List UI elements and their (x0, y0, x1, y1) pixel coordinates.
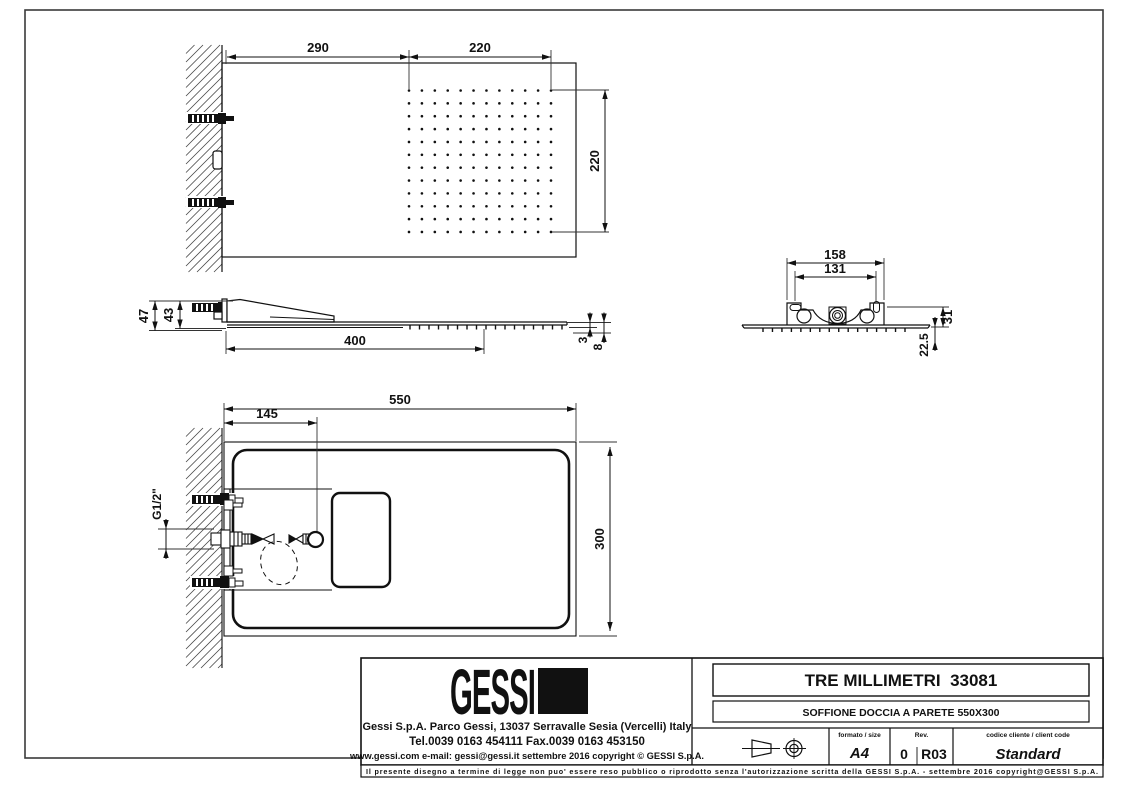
dim-arrowhead (542, 54, 551, 59)
dim-arrowhead (587, 314, 592, 323)
nozzle-dot (524, 128, 527, 131)
nozzle-dot (408, 192, 411, 195)
nozzle-dot (434, 166, 437, 169)
nozzle-dot (408, 166, 411, 169)
hose-connection-port (308, 532, 323, 547)
nozzle-dot (498, 192, 501, 195)
nozzle-dot (472, 179, 475, 182)
nozzle-dot (524, 166, 527, 169)
rear-view (742, 302, 930, 333)
nozzle-dot (434, 141, 437, 144)
dim-arrowhead (932, 318, 937, 327)
nozzle-dot (459, 166, 462, 169)
wall-clip-detail (213, 151, 222, 169)
nozzle-dot (421, 179, 424, 182)
nozzle-dot (537, 179, 540, 182)
dim-arrowhead (475, 346, 484, 351)
nozzle-dot (511, 141, 514, 144)
dim-arrowhead (607, 622, 612, 631)
nozzle-dot (421, 128, 424, 131)
nozzle-ticks-rear (763, 329, 905, 333)
nozzle-dot (511, 231, 514, 234)
dim-label: 220 (587, 150, 602, 172)
dim-label: 158 (824, 247, 846, 262)
nozzle-dot (459, 154, 462, 157)
shower-plate-outline-top (222, 63, 576, 257)
rev-value: 0 (900, 746, 908, 762)
wall-anchor-icon (186, 196, 234, 208)
nozzle-dot (511, 205, 514, 208)
nozzle-dot (550, 128, 553, 131)
nozzle-dot (524, 218, 527, 221)
nozzle-dot (459, 89, 462, 92)
dim-arrowhead (601, 333, 606, 342)
nozzle-dot (446, 89, 449, 92)
nozzle-dot (434, 89, 437, 92)
nozzle-dot (537, 166, 540, 169)
nozzle-dot (421, 115, 424, 118)
nozzle-dot (434, 205, 437, 208)
top-view (186, 45, 576, 272)
nozzle-dot (485, 218, 488, 221)
nozzle-dot (498, 141, 501, 144)
nozzle-dot (550, 231, 553, 234)
nozzle-dot (550, 179, 553, 182)
dim-arrowhead (409, 54, 418, 59)
dim-arrowhead (587, 328, 592, 337)
nozzle-dot (446, 192, 449, 195)
nozzle-dot (498, 128, 501, 131)
nozzle-dot (421, 166, 424, 169)
nozzle-dot (434, 218, 437, 221)
nozzle-dot (485, 128, 488, 131)
format-label: formato / size (838, 732, 881, 739)
nozzle-dot (524, 205, 527, 208)
nozzle-dot (446, 128, 449, 131)
nozzle-dot (408, 154, 411, 157)
nozzle-dot (537, 205, 540, 208)
nozzle-dot (550, 205, 553, 208)
nozzle-dot (459, 102, 462, 105)
nozzle-dot (524, 141, 527, 144)
nozzle-dot (434, 192, 437, 195)
nozzle-dot (550, 102, 553, 105)
nozzle-dot (524, 192, 527, 195)
nozzle-dot (511, 192, 514, 195)
hatch-line (186, 45, 195, 54)
nozzle-dot (472, 89, 475, 92)
nozzle-dot (485, 205, 488, 208)
nozzle-dot (524, 231, 527, 234)
dim-arrowhead (602, 90, 607, 99)
shower-head-body (233, 450, 569, 628)
gessi-logo-square (538, 668, 588, 714)
nozzle-dot (459, 128, 462, 131)
cover-plate (332, 493, 390, 587)
dim-arrowhead (163, 549, 168, 558)
nozzle-dot (485, 179, 488, 182)
hatch-line (186, 45, 203, 62)
company-address: Gessi S.p.A. Parco Gessi, 13037 Serraval… (363, 721, 693, 733)
hatch-line (186, 428, 220, 462)
nozzle-dot (537, 231, 540, 234)
nozzle-dot (511, 218, 514, 221)
dimension-labels: 290 220 220 47 43 400 3 8 158 131 31 22.… (136, 40, 955, 550)
nozzle-dot (408, 102, 411, 105)
dim-arrowhead (932, 341, 937, 350)
nozzle-dot (459, 231, 462, 234)
dim-label: 8 (591, 343, 605, 350)
nozzle-dot (511, 128, 514, 131)
dim-arrowhead (795, 274, 804, 279)
hatch-line (206, 256, 223, 273)
hatch-line (218, 664, 222, 668)
gessi-logo-text: GESSI (450, 656, 535, 728)
nozzle-dot (537, 89, 540, 92)
nozzle-dot (498, 205, 501, 208)
company-phone: Tel.0039 0163 454111 Fax.0039 0163 45315… (409, 736, 645, 748)
nozzle-dot (446, 231, 449, 234)
glass-panel-outline (224, 442, 576, 636)
dim-arrowhead (875, 260, 884, 265)
legal-text: Il presente disegno a termine di legge n… (366, 767, 1098, 776)
technical-drawing-canvas: 290 220 220 47 43 400 3 8 158 131 31 22.… (0, 0, 1123, 794)
nozzle-dot (498, 218, 501, 221)
nozzle-dot (446, 154, 449, 157)
title-block: GESSI Gessi S.p.A. Parco Gessi, 13037 Se… (349, 656, 1103, 777)
nozzle-dot (408, 218, 411, 221)
nozzle-dot (472, 192, 475, 195)
dim-arrowhead (567, 406, 576, 411)
wall-anchor-icon (186, 112, 234, 124)
dim-arrowhead (163, 520, 168, 529)
nozzle-dot (446, 102, 449, 105)
center-boss-mid (833, 311, 843, 321)
nozzle-dot (511, 115, 514, 118)
hole-right (860, 309, 874, 323)
nozzle-dot (446, 218, 449, 221)
dim-arrowhead (226, 346, 235, 351)
nozzle-dot (498, 231, 501, 234)
nozzle-dot (550, 192, 553, 195)
nozzle-dot (485, 102, 488, 105)
nozzle-dot (498, 154, 501, 157)
drawing-sheet: 290 220 220 47 43 400 3 8 158 131 31 22.… (0, 0, 1123, 794)
nozzle-dot (524, 115, 527, 118)
dim-arrowhead (308, 420, 317, 425)
hatch-line (193, 639, 223, 669)
dim-label: 31 (940, 310, 955, 324)
hatch-line (186, 428, 195, 437)
nozzle-dot (434, 179, 437, 182)
nozzle-dot (421, 218, 424, 221)
bracket-step (214, 312, 222, 319)
hatch-line (189, 239, 223, 273)
dim-label: 131 (824, 261, 846, 276)
extension-lines (149, 50, 949, 636)
center-boss-outer (830, 308, 846, 324)
nozzle-dot (511, 154, 514, 157)
wall-hatching-plan (186, 428, 222, 668)
dim-label: 220 (469, 40, 491, 55)
nozzle-dot (472, 128, 475, 131)
dim-arrowhead (601, 314, 606, 323)
nozzle-dot (524, 179, 527, 182)
nozzle-dot (498, 166, 501, 169)
nozzle-dot (472, 115, 475, 118)
nozzle-dot (459, 141, 462, 144)
nozzle-dot (511, 166, 514, 169)
nozzle-dot (434, 102, 437, 105)
nozzle-dot (446, 115, 449, 118)
nozzle-dot (485, 141, 488, 144)
nozzle-ticks-side (410, 326, 562, 330)
nozzle-dot (537, 115, 540, 118)
hatch-line (214, 264, 222, 272)
nozzle-dot (550, 141, 553, 144)
nozzle-dot (485, 192, 488, 195)
dim-arrowhead (224, 406, 233, 411)
dim-label: 145 (256, 406, 278, 421)
nozzle-dot (459, 205, 462, 208)
nozzle-dot (498, 89, 501, 92)
nozzle-dot (434, 231, 437, 234)
nozzle-dot (524, 102, 527, 105)
nozzle-dot (537, 218, 540, 221)
client-code-value: Standard (995, 746, 1061, 763)
nozzle-dot (421, 192, 424, 195)
dim-arrowhead (787, 260, 796, 265)
slot-left (790, 305, 801, 311)
nozzle-dot (421, 102, 424, 105)
nozzle-dot (485, 166, 488, 169)
nozzle-dot (421, 89, 424, 92)
nozzle-dot (421, 154, 424, 157)
dim-label: 22.5 (917, 333, 931, 357)
nozzle-dot (537, 141, 540, 144)
water-inlet-assembly (211, 530, 323, 548)
nozzle-dot (498, 179, 501, 182)
nozzle-dot (550, 154, 553, 157)
nozzle-dot (511, 89, 514, 92)
nozzle-dot (498, 115, 501, 118)
client-code-label: codice cliente / client code (986, 732, 1070, 739)
nozzle-dot (472, 154, 475, 157)
dimension-lines (152, 54, 945, 631)
dim-arrowhead (227, 54, 236, 59)
company-web: www.gessi.com e-mail: gessi@gessi.it set… (349, 751, 704, 761)
nozzle-grid (408, 89, 553, 233)
nozzle-dot (408, 115, 411, 118)
mounting-plate-edge (222, 299, 227, 322)
nozzle-dot (498, 102, 501, 105)
nozzle-dot (550, 166, 553, 169)
nozzle-dot (485, 154, 488, 157)
nozzle-dot (485, 115, 488, 118)
nozzle-dot (472, 205, 475, 208)
plan-view (186, 428, 576, 668)
fixing-screw-icon (224, 566, 242, 576)
nozzle-dot (550, 218, 553, 221)
nozzle-dot (537, 154, 540, 157)
nozzle-dot (408, 231, 411, 234)
hatch-line (186, 45, 220, 79)
nozzle-dot (446, 141, 449, 144)
nozzle-dot (408, 128, 411, 131)
nozzle-dot (408, 141, 411, 144)
dim-label: 400 (344, 333, 366, 348)
nozzle-dot (446, 205, 449, 208)
dim-arrowhead (400, 54, 409, 59)
dim-label: 290 (307, 40, 329, 55)
center-boss-inner (835, 313, 841, 319)
wall-anchor-icon (190, 576, 243, 589)
nozzle-dot (472, 231, 475, 234)
dim-arrowhead (602, 223, 607, 232)
nozzle-dot (485, 231, 488, 234)
dim-arrowhead (867, 274, 876, 279)
hole-left (797, 309, 811, 323)
nozzle-dot (421, 205, 424, 208)
nozzle-dot (459, 179, 462, 182)
nozzle-dot (524, 89, 527, 92)
nozzle-dot (550, 115, 553, 118)
nozzle-dot (459, 218, 462, 221)
nozzle-dot (472, 218, 475, 221)
dim-arrowhead (152, 322, 157, 331)
dim-arrowhead (177, 301, 182, 310)
nozzle-dot (408, 205, 411, 208)
dim-label: 43 (161, 308, 176, 322)
nozzle-dot (434, 154, 437, 157)
rev-label: Rev. (915, 732, 929, 739)
nozzle-dot (472, 166, 475, 169)
side-view (192, 299, 567, 330)
nozzle-dot (408, 179, 411, 182)
dim-label: 3 (576, 336, 590, 343)
nozzle-dot (524, 154, 527, 157)
nozzle-dot (537, 128, 540, 131)
dim-label: 47 (136, 309, 151, 323)
nozzle-dot (434, 115, 437, 118)
wall-anchor-icon (192, 302, 225, 313)
nozzle-dot (421, 141, 424, 144)
nozzle-dot (472, 102, 475, 105)
drawing-subtitle: SOFFIONE DOCCIA A PARETE 550X300 (802, 707, 999, 719)
dim-arrowhead (152, 301, 157, 310)
nozzle-dot (446, 166, 449, 169)
nozzle-dot (472, 141, 475, 144)
nozzle-dot (434, 128, 437, 131)
rev-code-value: R03 (921, 746, 947, 762)
dim-label: 550 (389, 392, 411, 407)
nozzle-dot (537, 102, 540, 105)
dim-label: 300 (592, 528, 607, 550)
dim-arrowhead (607, 447, 612, 456)
drawing-title: TRE MILLIMETRI 33081 (805, 671, 998, 690)
hatch-line (186, 428, 203, 445)
hatch-line (201, 647, 222, 668)
nozzle-dot (459, 115, 462, 118)
dim-arrowhead (224, 420, 233, 425)
format-value: A4 (849, 745, 870, 762)
dim-arrowhead (177, 320, 182, 329)
nozzle-dot (485, 89, 488, 92)
nozzle-dot (511, 179, 514, 182)
nozzle-dot (511, 102, 514, 105)
nozzle-dot (421, 231, 424, 234)
nozzle-dot (537, 192, 540, 195)
nozzle-dot (459, 192, 462, 195)
nozzle-dot (550, 89, 553, 92)
nozzle-dot (446, 179, 449, 182)
dim-label: G1/2" (150, 488, 164, 520)
hidden-hole-dashed (255, 537, 303, 590)
nozzle-dot (408, 89, 411, 92)
